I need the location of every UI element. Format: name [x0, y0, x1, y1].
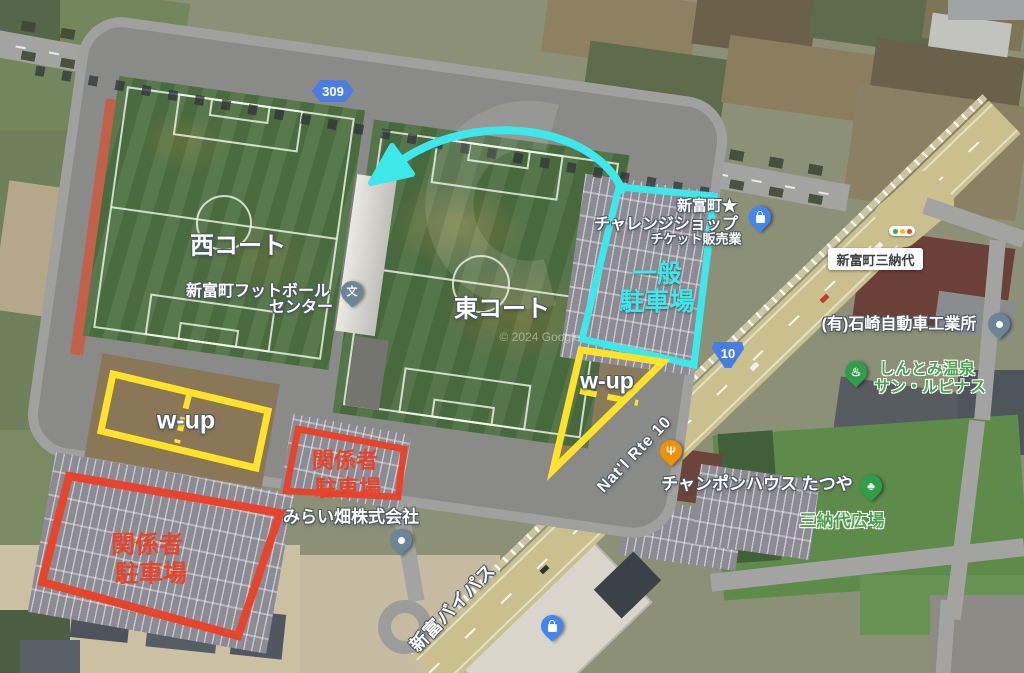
staff-parking-mid-label-line2: 駐車場	[315, 471, 381, 503]
restaurant-pin-icon[interactable]: Ψ	[655, 435, 686, 466]
champon-label[interactable]: チャンポンハウス たつや	[661, 470, 853, 495]
shopping-pin-icon[interactable]	[536, 610, 567, 641]
staff-parking-sw-label-line2: 駐車場	[115, 554, 187, 589]
general-parking-label-line2: 駐車場	[619, 282, 694, 318]
map-attribution: © 2024 Google	[500, 330, 581, 344]
park-tree-glyph: ♣	[860, 475, 882, 497]
football-center-label-line2[interactable]: センター	[269, 293, 333, 317]
west-court-label: 西コート	[190, 226, 286, 261]
amber-light-dot	[900, 229, 905, 234]
plaza-label[interactable]: 三納代広場	[800, 507, 885, 532]
route-309-badge: 309	[312, 80, 354, 102]
district-label-text: 新富町三納代	[836, 250, 914, 269]
mirai-label[interactable]: みらい畑株式会社	[283, 503, 419, 528]
green-light-dot	[893, 229, 898, 234]
warmup-west-label: w-up	[157, 407, 215, 436]
challenge-shop-label-line3[interactable]: チケット販売業	[650, 229, 741, 248]
route-10-badge-label: 10	[721, 346, 735, 361]
satellite-map[interactable]: 309 10 新富町三納代 西コート 東コート 新富町フットボール センター 新…	[0, 0, 1024, 673]
warmup-east-label: w-up	[580, 368, 634, 395]
place-dot-glyph	[390, 529, 412, 551]
onsen-pin-glyph: ♨	[845, 361, 867, 383]
onsen-label-line2[interactable]: サン・ルピナス	[874, 373, 986, 397]
east-court-label: 東コート	[454, 289, 550, 324]
traffic-light-icon	[889, 226, 915, 236]
school-pin-glyph: 文	[341, 281, 363, 303]
red-light-dot	[907, 229, 912, 234]
route-309-badge-label: 309	[322, 84, 344, 99]
onsen-pin-icon[interactable]: ♨	[840, 356, 871, 387]
shopping-pin-icon[interactable]	[744, 201, 775, 232]
restaurant-pin-glyph: Ψ	[660, 440, 682, 462]
place-pin-icon[interactable]	[983, 308, 1014, 339]
shopping-bag-glyph	[541, 615, 563, 637]
ishizaki-label[interactable]: (有)石崎自動車工業所	[822, 310, 977, 334]
school-pin-icon[interactable]: 文	[336, 276, 367, 307]
park-pin-icon[interactable]: ♣	[855, 470, 886, 501]
district-label-box[interactable]: 新富町三納代	[828, 248, 923, 270]
place-pin-icon[interactable]	[385, 524, 416, 555]
place-dot-glyph	[988, 313, 1010, 335]
shopping-bag-glyph	[749, 206, 771, 228]
